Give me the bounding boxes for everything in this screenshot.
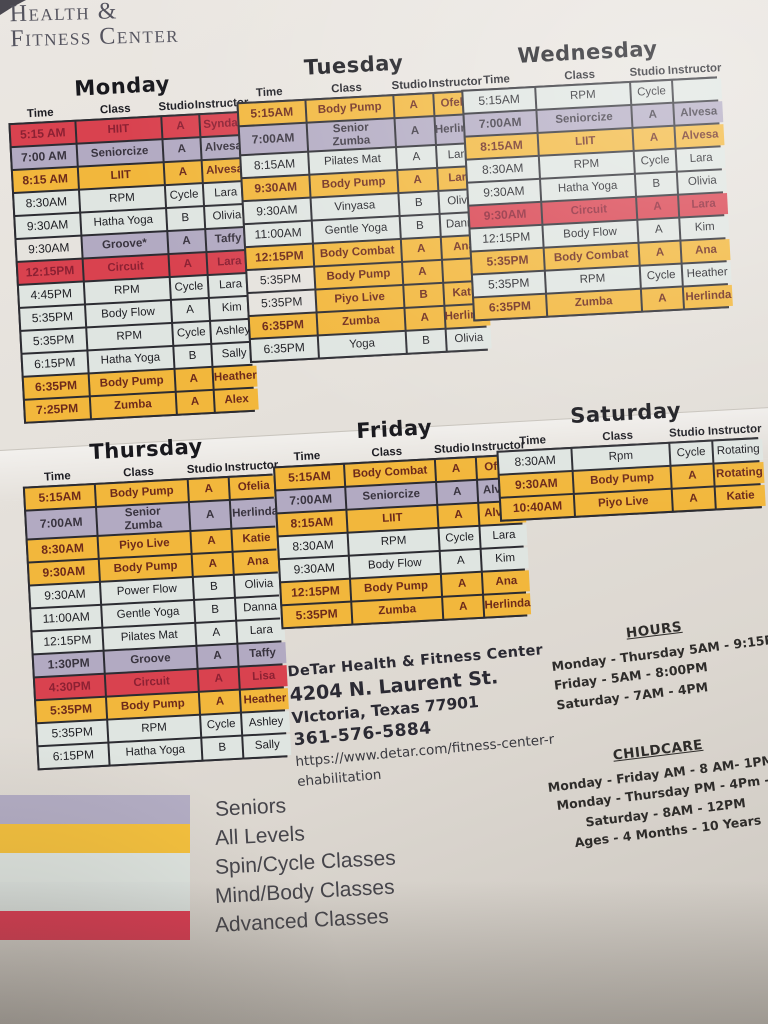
studio-cell: A	[442, 573, 482, 596]
studio-cell: A	[196, 622, 236, 645]
class-cell: Body Pump	[89, 370, 174, 395]
time-cell: 5:15 AM	[11, 122, 76, 146]
studio-cell: B	[407, 330, 445, 353]
time-cell: 7:00AM	[26, 508, 96, 539]
class-cell: Hatha Yoga	[109, 739, 201, 765]
instructor-cell: Ashley	[242, 711, 290, 734]
time-cell: 11:00AM	[245, 222, 312, 246]
time-cell: 9:30AM	[29, 560, 99, 585]
studio-cell: A	[175, 368, 212, 391]
time-cell: 9:30AM	[244, 199, 311, 223]
studio-cell: B	[202, 737, 242, 760]
column-header: Studio	[627, 65, 669, 79]
studio-cell: B	[195, 599, 235, 622]
instructor-cell: Kim	[680, 216, 729, 239]
class-cell: Body Pump	[96, 480, 188, 506]
class-cell: RPM	[84, 278, 169, 303]
schedule-grid: 5:15AMBody CombatAOfelia7:00AMSeniorcize…	[273, 454, 527, 630]
time-cell: 5:15AM	[239, 101, 306, 125]
class-cell: Hatha Yoga	[81, 209, 166, 234]
schedule-friday: FridayTimeClassStudioInstructor5:15AMBod…	[271, 411, 527, 630]
class-cell: Groove	[104, 647, 196, 673]
column-header: Studio	[432, 442, 472, 456]
studio-cell: B	[400, 192, 438, 215]
class-cell: Seniorcize	[346, 483, 437, 509]
studio-cell: Cycle	[173, 322, 210, 345]
time-cell: 9:30AM	[17, 237, 82, 261]
studio-cell: A	[200, 691, 240, 714]
time-cell: 7:25PM	[25, 397, 90, 421]
column-header: Time	[460, 72, 532, 88]
class-cell: Vinyasa	[311, 194, 399, 220]
legend-label: All Levels	[214, 822, 305, 851]
column-header: Instructor	[224, 460, 272, 474]
schedule-grid: 8:30AMRpmCycleRotating9:30AMBody PumpARo…	[496, 437, 761, 522]
studio-cell: A	[396, 117, 435, 146]
class-cell: RPM	[80, 186, 165, 211]
schedule-saturday: SaturdayTimeClassStudioInstructor8:30AMR…	[494, 394, 762, 522]
time-cell: 6:15PM	[39, 744, 109, 769]
class-cell: Gentle Yoga	[102, 601, 194, 627]
time-cell: 12:15PM	[281, 580, 350, 605]
time-cell: 7:00AM	[276, 488, 345, 513]
class-cell: Zumba	[547, 290, 641, 316]
class-cell: RPM	[348, 529, 439, 555]
schedule-tuesday: TuesdayTimeClassStudioInstructor5:15AMBo…	[234, 47, 488, 363]
instructor-cell: Heather	[683, 262, 732, 285]
studio-cell: A	[632, 104, 673, 127]
studio-cell: B	[174, 345, 211, 368]
studio-cell: Cycle	[641, 265, 682, 288]
time-cell: 7:00AM	[465, 111, 537, 136]
studio-cell: Cycle	[670, 442, 712, 465]
instructor-cell: Rotating	[714, 462, 764, 486]
time-cell: 1:30PM	[34, 652, 104, 677]
time-cell: 5:35PM	[37, 721, 107, 746]
time-cell: 8:30AM	[14, 191, 79, 215]
studio-cell: A	[671, 465, 713, 488]
class-cell: LIIT	[538, 129, 632, 155]
studio-cell: Cycle	[634, 150, 675, 173]
time-cell: 9:30AM	[280, 557, 349, 582]
schedule-grid: 5:15AMRPMCycle7:00AMSeniorcizeAAlvesa8:1…	[461, 76, 729, 321]
column-header: Instructor	[195, 97, 239, 111]
time-cell: 6:35PM	[250, 314, 317, 338]
studio-cell: A	[176, 391, 213, 414]
studio-cell: B	[194, 576, 234, 599]
time-cell: 12:15PM	[18, 260, 83, 284]
class-cell: Body Flow	[350, 552, 441, 578]
time-cell: 7:00 AM	[12, 145, 77, 169]
class-cell: Pilates Mat	[103, 624, 195, 650]
class-cell: Yoga	[318, 332, 406, 358]
schedule-grid: 5:15 AMHIITASyndal7:00 AMSeniorcizeAAlve…	[8, 111, 254, 424]
studio-cell: A	[397, 146, 435, 169]
time-cell: 8:15AM	[466, 134, 538, 159]
instructor-cell: Sally	[243, 734, 291, 757]
class-cell: Rpm	[573, 444, 669, 470]
time-cell: 6:15PM	[23, 351, 88, 375]
contact-block: DeTar Health & Fitness Center 4204 N. La…	[287, 642, 557, 790]
time-cell: 9:30AM	[30, 583, 100, 608]
time-cell: 5:35PM	[36, 698, 106, 723]
column-header: Time	[8, 106, 73, 121]
time-cell: 8:30AM	[499, 449, 572, 474]
time-cell: 9:30AM	[242, 176, 309, 200]
class-cell: RPM	[539, 152, 633, 178]
class-cell: Body Pump	[100, 555, 192, 581]
instructor-cell: Alvesa	[674, 101, 723, 124]
studio-cell: B	[404, 284, 442, 307]
class-cell: Body Flow	[86, 301, 171, 326]
instructor-cell: Lara	[480, 524, 527, 547]
legend-swatch	[0, 795, 190, 824]
instructor-cell: Heather	[241, 688, 289, 711]
studio-cell: A	[190, 501, 231, 530]
time-cell: 5:35PM	[21, 329, 86, 353]
time-cell: 8:30AM	[467, 157, 539, 182]
studio-cell: A	[193, 553, 233, 576]
color-legend: SeniorsAll LevelsSpin/Cycle ClassesMind/…	[0, 795, 396, 940]
class-cell: LIIT	[78, 163, 163, 188]
class-cell: Circuit	[542, 198, 636, 224]
studio-cell: A	[171, 299, 208, 322]
class-cell: Seniorcize	[77, 140, 162, 165]
studio-cell: A	[402, 238, 440, 261]
studio-cell: A	[642, 288, 683, 311]
class-cell: HIIT	[76, 117, 161, 142]
class-cell: Senior Zumba	[97, 503, 189, 535]
class-cell: Body Pump	[315, 263, 403, 289]
instructor-cell: Ana	[682, 239, 731, 262]
time-cell: 4:30PM	[35, 675, 105, 700]
time-cell: 5:35PM	[473, 272, 545, 297]
studio-cell: B	[167, 207, 204, 230]
instructor-cell: Lara	[237, 619, 285, 642]
time-cell: 9:30AM	[468, 180, 540, 205]
time-cell: 12:15PM	[246, 245, 313, 269]
class-cell: Body Pump	[306, 96, 394, 122]
time-cell: 5:35PM	[247, 268, 314, 292]
time-cell: 5:15AM	[463, 88, 535, 113]
time-cell: 9:30AM	[469, 203, 541, 228]
studio-cell: Cycle	[440, 527, 480, 550]
class-cell: Zumba	[90, 393, 175, 418]
column-header: Time	[272, 449, 341, 465]
studio-cell: A	[672, 488, 714, 511]
studio-cell: A	[162, 115, 199, 138]
instructor-cell: Taffy	[239, 642, 287, 665]
class-cell: Piyo Live	[98, 532, 190, 558]
class-cell: RPM	[536, 83, 630, 109]
studio-cell: Cycle	[165, 184, 202, 207]
class-cell: RPM	[545, 267, 639, 293]
studio-cell: Cycle	[201, 714, 241, 737]
time-cell: 5:15AM	[275, 465, 344, 490]
time-cell: 8:15AM	[278, 511, 347, 536]
schedule-wednesday: WednesdayTimeClassStudioInstructor5:15AM…	[459, 33, 729, 321]
class-cell: LIIT	[347, 506, 438, 532]
instructor-cell: Ofelia	[230, 475, 278, 498]
instructor-cell: Lara	[677, 147, 726, 170]
time-cell: 8:30AM	[28, 537, 98, 562]
class-cell: Body Pump	[351, 575, 442, 601]
studio-cell: A	[398, 169, 436, 192]
column-header: Time	[236, 85, 303, 100]
studio-cell: A	[638, 219, 679, 242]
column-header: Studio	[184, 462, 225, 476]
studio-cell: A	[437, 481, 477, 504]
studio-cell: A	[191, 530, 231, 553]
class-cell: RPM	[87, 324, 172, 349]
schedule-grid: 5:15AMBody PumpAOfelia7:00AMSenior Zumba…	[236, 90, 487, 363]
studio-cell: A	[403, 261, 441, 284]
instructor-cell: Katie	[716, 485, 766, 509]
column-header: Instructor	[708, 423, 758, 438]
class-cell: Body Combat	[345, 460, 436, 486]
time-cell: 7:00AM	[240, 124, 307, 155]
legend-item: Seniors	[0, 795, 396, 824]
class-cell: Body Combat	[314, 240, 402, 266]
studio-cell: A	[394, 94, 432, 117]
instructor-cell: Herlinda	[231, 498, 279, 528]
studio-cell: A	[436, 458, 476, 481]
column-header: Time	[22, 469, 93, 485]
instructor-cell: Danna	[236, 597, 284, 620]
studio-cell: A	[197, 645, 237, 668]
instructor-cell: Ana	[483, 570, 530, 593]
instructor-cell: Olivia	[678, 170, 727, 193]
instructor-cell	[673, 78, 722, 101]
time-cell: 11:00AM	[31, 606, 101, 631]
studio-cell: A	[168, 230, 205, 253]
studio-cell: A	[639, 242, 680, 265]
instructor-cell: Alvesa	[676, 124, 725, 147]
studio-cell: A	[163, 138, 200, 161]
schedule-thursday: ThursdayTimeClassStudioInstructor5:15AMB…	[21, 431, 288, 771]
time-cell: 5:35PM	[249, 291, 316, 315]
instructor-cell: Ana	[234, 551, 282, 574]
time-cell: 9:30AM	[500, 472, 573, 497]
studio-cell: A	[441, 550, 481, 573]
class-cell: Senior Zumba	[307, 119, 395, 151]
schedule-monday: MondayTimeClassStudioInstructor5:15 AMHI…	[6, 68, 255, 424]
instructor-cell: Alex	[215, 389, 259, 412]
studio-cell: A	[406, 307, 444, 330]
studio-cell: Cycle	[170, 276, 207, 299]
time-cell: 12:15PM	[33, 629, 103, 654]
class-cell: Body Combat	[544, 244, 638, 270]
instructor-cell: Rotating	[713, 439, 763, 463]
class-cell: Groove*	[82, 232, 167, 257]
legend-swatch	[0, 911, 190, 940]
class-cell: Body Pump	[310, 171, 398, 197]
legend-item: Advanced Classes	[0, 911, 396, 940]
studio-cell: Cycle	[631, 81, 672, 104]
instructor-cell: Lara	[679, 193, 728, 216]
instructor-cell: Katie	[233, 528, 281, 551]
time-cell: 5:35PM	[472, 249, 544, 274]
class-cell: Hatha Yoga	[88, 347, 173, 372]
class-cell: Zumba	[317, 309, 405, 335]
studio-cell: A	[439, 504, 479, 527]
class-cell: Power Flow	[101, 578, 193, 604]
time-cell: 8:30AM	[279, 534, 348, 559]
time-cell: 9:30AM	[15, 214, 80, 238]
instructor-cell: Olivia	[235, 574, 283, 597]
time-cell: 6:35PM	[251, 337, 318, 361]
column-header: Instructor	[668, 62, 717, 77]
time-cell: 5:35PM	[20, 306, 85, 330]
class-cell: Zumba	[352, 598, 443, 624]
class-cell: Body Flow	[543, 221, 637, 247]
time-cell: 5:15AM	[25, 485, 95, 510]
class-cell: Circuit	[106, 670, 198, 696]
column-header: Studio	[158, 99, 196, 113]
class-cell: Gentle Yoga	[312, 217, 400, 243]
schedule-photo: Health & Fitness Center MondayTimeClassS…	[0, 0, 768, 1024]
time-cell: 10:40AM	[501, 495, 574, 520]
class-cell: Body Pump	[574, 467, 670, 493]
class-cell: Body Pump	[107, 693, 199, 719]
class-cell: Seniorcize	[537, 106, 631, 132]
legend-swatch	[0, 853, 190, 882]
instructor-cell: Kim	[482, 547, 529, 570]
instructor-cell: Heather	[213, 366, 257, 389]
instructor-cell: Herlinda	[684, 285, 733, 308]
time-cell: 6:35PM	[24, 374, 89, 398]
time-cell: 12:15PM	[471, 226, 543, 251]
class-cell: RPM	[108, 716, 200, 742]
class-cell: Piyo Live	[316, 286, 404, 312]
studio-cell: A	[189, 478, 229, 501]
time-cell: 8:15AM	[241, 153, 308, 177]
time-cell: 5:35PM	[282, 603, 351, 628]
legend-swatch	[0, 882, 190, 911]
class-cell: Circuit	[83, 255, 168, 280]
studio-cell: B	[636, 173, 677, 196]
studio-cell: A	[164, 161, 201, 184]
time-cell: 8:15 AM	[13, 168, 78, 192]
studio-cell: A	[443, 596, 483, 619]
studio-cell: A	[633, 127, 674, 150]
instructor-cell: Herlinda	[484, 593, 531, 616]
time-cell: 4:45PM	[19, 283, 84, 307]
legend-label: Seniors	[214, 794, 286, 822]
column-header: Studio	[390, 78, 429, 92]
instructor-cell: Olivia	[446, 328, 491, 351]
studio-cell: B	[401, 215, 439, 238]
studio-cell: A	[199, 668, 239, 691]
schedule-grid: 5:15AMBody PumpAOfelia7:00AMSenior Zumba…	[23, 474, 288, 771]
class-cell: Hatha Yoga	[541, 175, 635, 201]
studio-cell: A	[637, 196, 678, 219]
time-cell: 6:35PM	[474, 295, 546, 320]
legend-swatch	[0, 824, 190, 853]
class-cell: Pilates Mat	[309, 148, 397, 174]
instructor-cell: Lisa	[240, 665, 288, 688]
column-header: Time	[496, 433, 570, 449]
class-cell: Piyo Live	[575, 490, 671, 516]
studio-cell: A	[169, 253, 206, 276]
column-header: Studio	[666, 426, 708, 440]
